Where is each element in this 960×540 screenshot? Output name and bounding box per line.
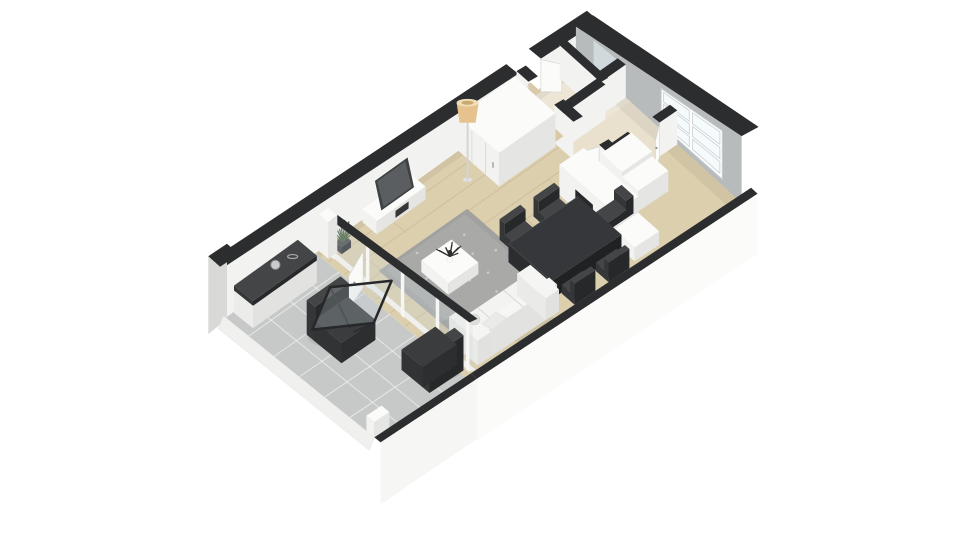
floor-plan-canvas — [0, 0, 960, 540]
apartment-3d-floor-plan — [0, 0, 960, 540]
